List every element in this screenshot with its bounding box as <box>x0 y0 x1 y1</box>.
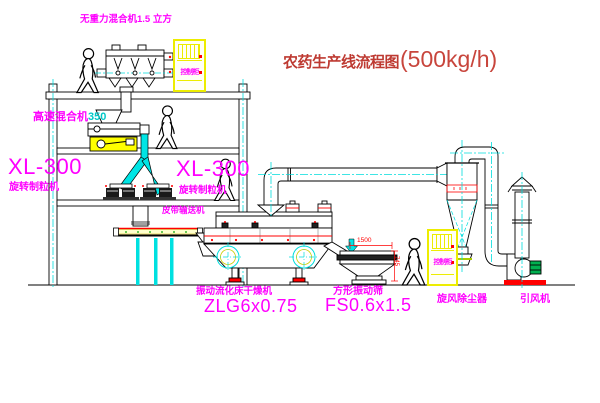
dimension-1500: 1500 <box>357 238 371 245</box>
granulator-left <box>103 184 139 200</box>
belt-conveyor <box>114 228 203 236</box>
induced-draft-fan <box>504 254 546 285</box>
cabinet-label: 控制柜 <box>429 257 456 267</box>
control-cabinet-lower: 控制柜 <box>427 229 458 286</box>
dryer-model-label: ZLG6x0.75 <box>204 297 298 315</box>
high-speed-mixer-label: 高速混合机350 <box>33 112 106 123</box>
flow-diagram-canvas: 控制柜 控制柜 农药生产线流程图 (500kg/h) 无重力混合机1.5 立方 … <box>0 0 600 403</box>
fan-label: 引风机 <box>520 295 550 305</box>
indicator-light <box>451 245 454 248</box>
title-capacity-text: (500kg/h) <box>400 46 497 73</box>
cabinet-label: 控制柜 <box>175 67 204 77</box>
gravity-free-mixer <box>95 45 175 92</box>
indicator-light <box>199 55 202 58</box>
gravity-mixer-label: 无重力混合机1.5 立方 <box>80 15 172 25</box>
red-bolt-dot <box>169 71 171 73</box>
granulator-left-name: 旋转制粒机 <box>9 183 59 193</box>
granulator-right-model: XL-300 <box>176 158 250 180</box>
high-speed-mixer-size: 350 <box>88 111 106 123</box>
cabinet-vent-grille <box>432 234 452 249</box>
person-figure-level2 <box>156 106 177 149</box>
person-figure-platform <box>77 49 98 93</box>
granulator-left-model: XL-300 <box>8 156 82 178</box>
top-mixer-discharge-duct <box>121 92 131 112</box>
cabinet-vent-grille <box>178 44 200 59</box>
person-figure-ground <box>402 239 425 285</box>
diagram-title: 农药生产线流程图 (500kg/h) <box>283 46 497 73</box>
high-speed-mixer-name: 高速混合机 <box>33 111 88 123</box>
screen-model-label: FS0.6x1.5 <box>325 296 412 314</box>
cyclone-label: 旋风除尘器 <box>437 295 487 305</box>
belt-conveyor-label: 皮带输送机 <box>162 206 205 215</box>
dimension-745: 745 <box>393 256 399 266</box>
granulator-right-name: 旋转制粒机 <box>179 186 227 196</box>
granulator-discharge-duct <box>131 206 150 226</box>
title-main-text: 农药生产线流程图 <box>283 51 399 72</box>
control-cabinet-upper: 控制柜 <box>173 39 206 92</box>
conveyor-support-posts <box>136 238 174 285</box>
red-bolt-dot <box>169 56 171 58</box>
